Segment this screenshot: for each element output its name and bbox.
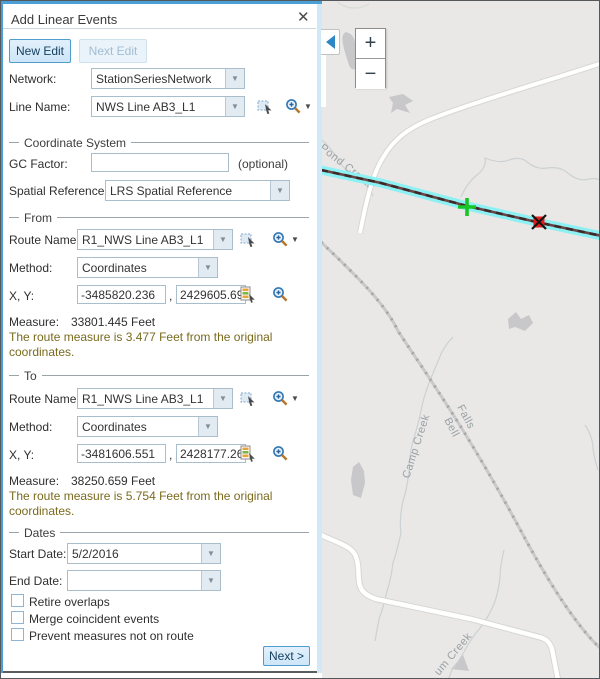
map-zoom-control: + −: [355, 28, 386, 88]
panel-title: Add Linear Events: [11, 12, 117, 27]
end-date-select[interactable]: ▼: [67, 570, 221, 591]
gc-factor-input[interactable]: [91, 153, 229, 172]
prevent-measures-checkbox[interactable]: [11, 628, 24, 641]
from-y-input[interactable]: [176, 285, 246, 304]
select-route-on-map-icon[interactable]: [240, 390, 257, 407]
chevron-down-icon[interactable]: ▼: [201, 544, 220, 563]
chevron-down-icon[interactable]: ▼: [270, 181, 289, 200]
collapse-tab-stem: [321, 54, 326, 107]
zoom-to-route-icon[interactable]: [272, 390, 289, 407]
panel-bottom-frame: [1, 671, 317, 673]
from-route-name-select[interactable]: R1_NWS Line AB3_L1 ▼: [77, 229, 233, 250]
to-route-name-label: Route Name:: [9, 392, 80, 406]
to-route-name-select[interactable]: R1_NWS Line AB3_L1 ▼: [77, 388, 233, 409]
to-measure-note: The route measure is 5.754 Feet from the…: [9, 489, 309, 519]
from-route-name-value: R1_NWS Line AB3_L1: [78, 230, 213, 249]
from-section-title: From: [24, 211, 52, 225]
close-icon[interactable]: ✕: [297, 10, 310, 25]
coordinate-system-section-divider: Coordinate System: [9, 135, 309, 150]
to-xy-comma: ,: [169, 448, 172, 462]
collapse-panel-button[interactable]: [321, 29, 340, 55]
from-measure-label: Measure:: [9, 315, 59, 329]
to-method-select[interactable]: Coordinates ▼: [77, 416, 218, 437]
line-name-value: NWS Line AB3_L1: [92, 97, 225, 116]
retire-overlaps-checkbox[interactable]: [11, 594, 24, 607]
add-linear-events-panel: Add Linear Events ✕ New Edit Next Edit N…: [1, 1, 317, 679]
dates-section-title: Dates: [24, 526, 55, 540]
zoom-options-caret-icon[interactable]: ▼: [291, 235, 299, 244]
map-background: [322, 1, 600, 679]
pick-coordinates-icon[interactable]: [240, 286, 257, 303]
next-button[interactable]: Next >: [263, 646, 310, 666]
end-date-value: [68, 571, 201, 590]
from-method-value: Coordinates: [78, 258, 198, 277]
zoom-to-coordinates-icon[interactable]: [272, 445, 289, 462]
spatial-reference-label: Spatial Reference:: [9, 184, 108, 198]
from-x-input[interactable]: [77, 285, 166, 304]
select-route-on-map-icon[interactable]: [240, 231, 257, 248]
zoom-out-button[interactable]: −: [356, 59, 385, 89]
chevron-down-icon[interactable]: ▼: [198, 417, 217, 436]
network-select[interactable]: StationSeriesNetwork ▼: [91, 68, 245, 89]
from-section-divider: From: [9, 210, 309, 225]
from-measure-value: 33801.445 Feet: [71, 315, 155, 329]
chevron-down-icon[interactable]: ▼: [201, 571, 220, 590]
from-measure-note: The route measure is 3.477 Feet from the…: [9, 330, 309, 360]
start-date-select[interactable]: 5/2/2016 ▼: [67, 543, 221, 564]
prevent-measures-label: Prevent measures not on route: [29, 629, 194, 643]
dates-section-divider: Dates: [9, 525, 309, 540]
from-xy-label: X, Y:: [9, 289, 34, 303]
network-label: Network:: [9, 72, 56, 86]
to-method-value: Coordinates: [78, 417, 198, 436]
chevron-down-icon[interactable]: ▼: [213, 389, 232, 408]
new-edit-button[interactable]: New Edit: [9, 39, 71, 63]
to-x-input[interactable]: [77, 444, 166, 463]
map-canvas[interactable]: Pond Creek Falls Bell Camp Creek um Cree…: [322, 1, 600, 679]
to-measure-label: Measure:: [9, 474, 59, 488]
from-route-name-label: Route Name:: [9, 233, 80, 247]
start-date-label: Start Date:: [9, 547, 66, 561]
chevron-down-icon[interactable]: ▼: [213, 230, 232, 249]
to-section-title: To: [24, 369, 37, 383]
end-date-label: End Date:: [9, 574, 62, 588]
to-route-name-value: R1_NWS Line AB3_L1: [78, 389, 213, 408]
chevron-down-icon[interactable]: ▼: [225, 97, 244, 116]
coordinate-system-section-title: Coordinate System: [24, 136, 126, 150]
zoom-options-caret-icon[interactable]: ▼: [304, 102, 312, 111]
zoom-to-line-icon[interactable]: [285, 98, 302, 115]
network-value: StationSeriesNetwork: [92, 69, 225, 88]
chevron-down-icon[interactable]: ▼: [198, 258, 217, 277]
zoom-to-route-icon[interactable]: [272, 231, 289, 248]
chevron-down-icon[interactable]: ▼: [225, 69, 244, 88]
collapse-left-arrow-icon: [326, 35, 335, 49]
from-method-label: Method:: [9, 261, 52, 275]
zoom-in-button[interactable]: +: [356, 29, 385, 59]
select-line-on-map-icon[interactable]: [257, 98, 274, 115]
gc-factor-optional-hint: (optional): [238, 157, 288, 171]
to-section-divider: To: [9, 368, 309, 383]
retire-overlaps-label: Retire overlaps: [29, 595, 110, 609]
from-method-select[interactable]: Coordinates ▼: [77, 257, 218, 278]
merge-coincident-events-checkbox[interactable]: [11, 611, 24, 624]
merge-coincident-events-label: Merge coincident events: [29, 612, 159, 626]
pick-coordinates-icon[interactable]: [240, 445, 257, 462]
to-y-input[interactable]: [176, 444, 246, 463]
to-method-label: Method:: [9, 420, 52, 434]
panel-left-border: [1, 1, 3, 673]
app-window: Pond Creek Falls Bell Camp Creek um Cree…: [0, 0, 600, 679]
start-date-value: 5/2/2016: [68, 544, 201, 563]
line-name-label: Line Name:: [9, 100, 70, 114]
from-xy-comma: ,: [169, 289, 172, 303]
gc-factor-label: GC Factor:: [9, 157, 68, 171]
panel-titlebar: Add Linear Events ✕: [3, 4, 316, 29]
spatial-reference-value: LRS Spatial Reference: [106, 181, 270, 200]
line-name-select[interactable]: NWS Line AB3_L1 ▼: [91, 96, 245, 117]
zoom-to-coordinates-icon[interactable]: [272, 286, 289, 303]
spatial-reference-select[interactable]: LRS Spatial Reference ▼: [105, 180, 290, 201]
next-edit-button[interactable]: Next Edit: [79, 39, 147, 63]
to-measure-value: 38250.659 Feet: [71, 474, 155, 488]
to-point-marker[interactable]: [532, 215, 546, 229]
panel-top-border: [1, 1, 322, 4]
to-xy-label: X, Y:: [9, 448, 34, 462]
zoom-options-caret-icon[interactable]: ▼: [291, 394, 299, 403]
